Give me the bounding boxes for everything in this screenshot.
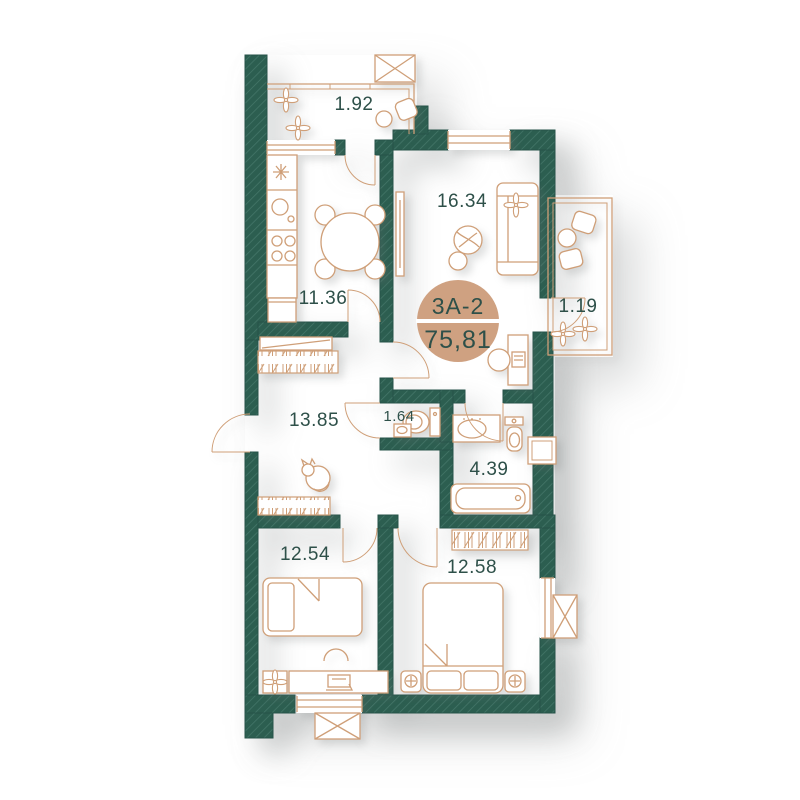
- window-bedroom-left-bottom: [297, 695, 362, 713]
- unit-id-label: 3A-2: [432, 293, 485, 319]
- wall-bath-top-left: [453, 390, 465, 403]
- bathtub-icon: [451, 484, 530, 513]
- balcony-table-icon: [376, 111, 392, 127]
- wall-kitchen-living-divider: [380, 140, 393, 342]
- wall-hall-bottom-right: [440, 515, 555, 528]
- wall-top-living-right: [510, 130, 555, 150]
- wall-kitchen-bottom: [258, 322, 348, 337]
- room-area-label-wc: 1.64: [383, 408, 414, 425]
- bath-sink-icon: [453, 415, 500, 442]
- kitchen-counter: [267, 155, 297, 298]
- total-area-label: 75,81: [424, 326, 492, 354]
- wall-bath-top-right: [503, 390, 533, 403]
- wall-hall-bottom-left: [258, 515, 340, 528]
- wall-left-hall: [245, 340, 258, 415]
- wall-right-bedroom-upper: [540, 525, 555, 578]
- single-bed-icon: [263, 578, 362, 636]
- wc-sink-icon: [394, 424, 411, 437]
- wall-wc-bath-divider: [440, 390, 453, 442]
- wall-left-top: [245, 55, 267, 340]
- nightstand-icon: [401, 671, 421, 692]
- room-area-label-bathroom: 4.39: [470, 459, 509, 480]
- wall-wc-top: [393, 390, 440, 403]
- towel-dryer-shaft: [528, 437, 556, 464]
- entrance-door-swing: [212, 414, 250, 452]
- double-bed-icon: [423, 583, 503, 693]
- wall-bedroom-divider: [378, 528, 393, 695]
- shoe-bench-icon: [260, 337, 332, 350]
- room-area-label-balcony-top: 1.92: [335, 94, 374, 115]
- wall-bottom-left: [245, 695, 295, 713]
- room-area-label-hall: 13.85: [289, 410, 339, 431]
- tv-icon: [396, 192, 404, 276]
- floor-plan-drawing: 1.92 16.34 11.36 1.19 13.85 1.64 4.39 12…: [0, 0, 800, 800]
- wall-right-middle: [533, 332, 553, 525]
- wall-corner-stub: [245, 713, 273, 738]
- floor-plan-page: 1.92 16.34 11.36 1.19 13.85 1.64 4.39 12…: [0, 0, 800, 800]
- wall-hall-corridor: [380, 378, 393, 403]
- window-living-top: [448, 130, 510, 150]
- room-area-label-kitchen: 11.36: [299, 288, 348, 309]
- wardrobe-hall-bottom: [258, 497, 330, 515]
- wall-kitchen-top-mid: [335, 140, 345, 155]
- wall-bottom-right: [362, 695, 555, 713]
- room-area-label-living: 16.34: [437, 191, 487, 212]
- room-area-label-bedroom-right: 12.58: [447, 557, 497, 578]
- sofa-icon: [497, 183, 538, 275]
- nightstand-icon: [505, 671, 525, 692]
- wall-hall-bottom-mid: [378, 515, 398, 528]
- dining-table-icon: [315, 205, 385, 279]
- loggia-table-icon: [558, 229, 576, 247]
- wall-left-bottom: [245, 452, 258, 695]
- room-area-label-bedroom-left: 12.54: [280, 544, 330, 565]
- wardrobe-hall-top: [258, 351, 338, 373]
- wall-kitchen-top-right: [375, 140, 393, 155]
- wardrobe-bedroom-right: [452, 530, 528, 550]
- bath-toilet-icon: [505, 417, 523, 451]
- window-kitchen-balcony: [267, 140, 335, 155]
- wall-right-bedroom-lower: [540, 638, 555, 713]
- room-area-label-loggia-right: 1.19: [559, 296, 598, 317]
